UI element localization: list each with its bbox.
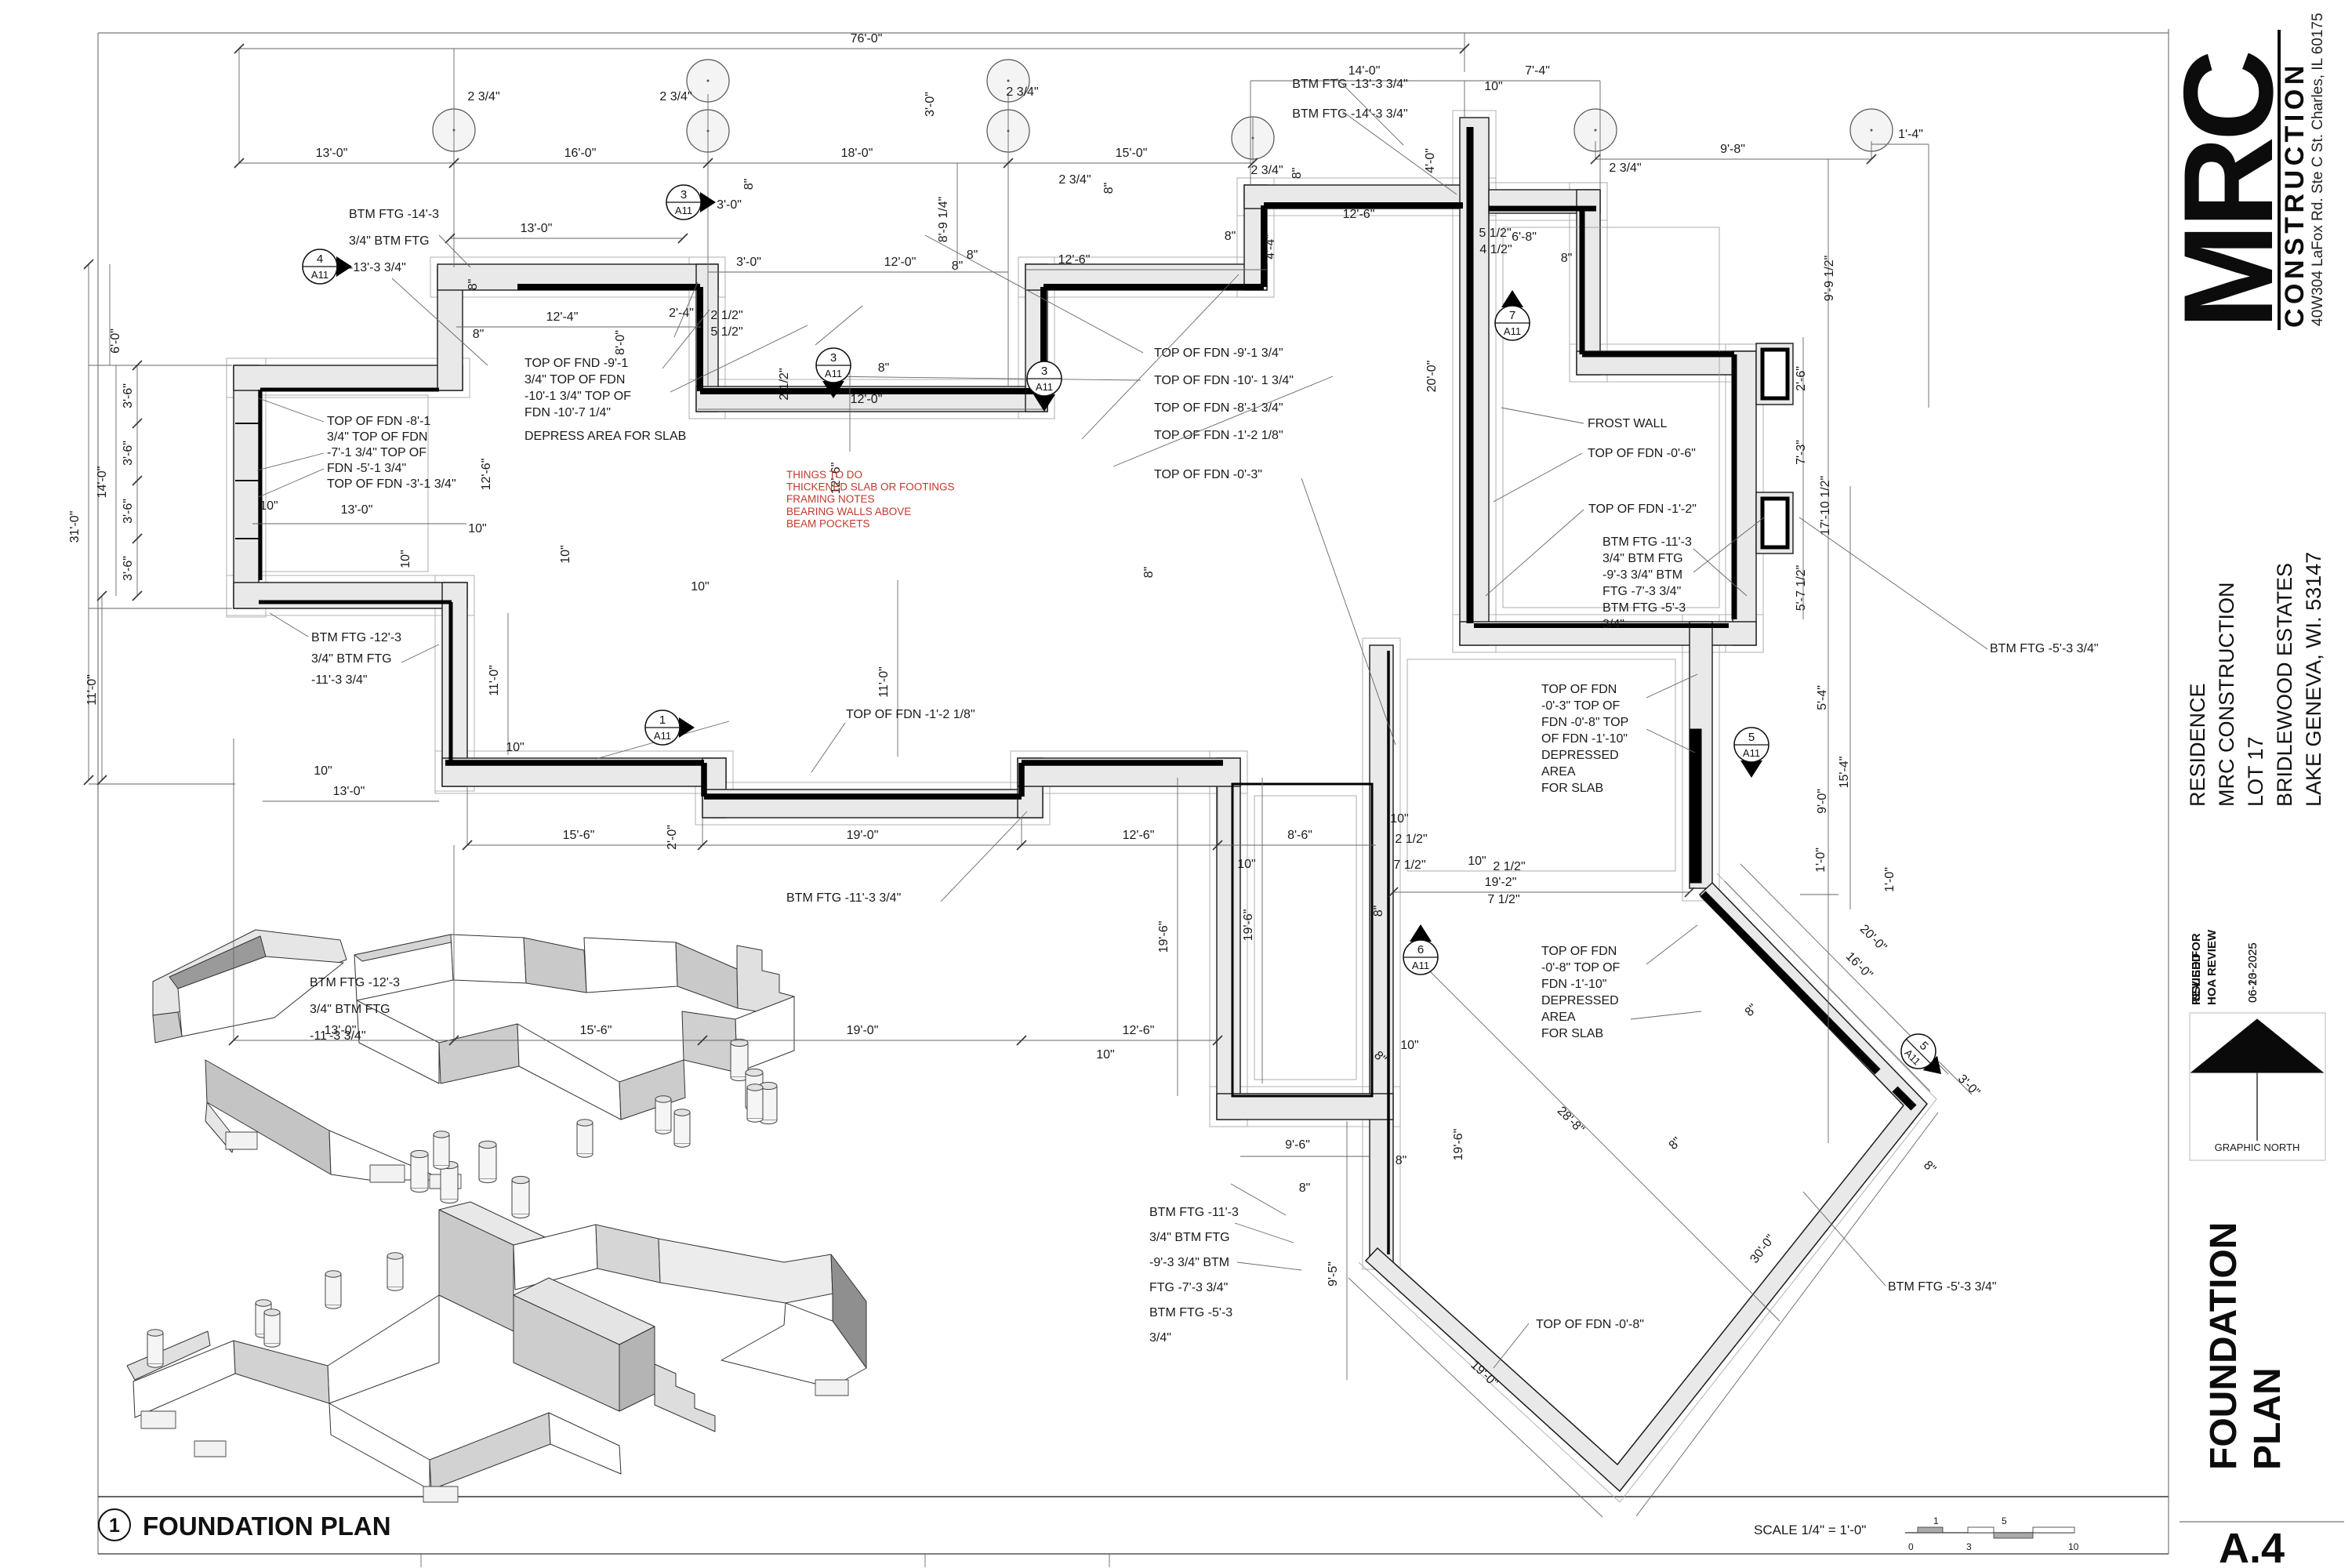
svg-text:BTM FTG -11'-3 3/4": BTM FTG -11'-3 3/4" [786,891,901,905]
svg-text:7: 7 [1509,309,1515,322]
svg-text:13'-0": 13'-0" [521,222,553,235]
svg-text:3/4": 3/4" [1602,618,1624,631]
svg-text:6'-0": 6'-0" [109,328,122,354]
svg-text:A11: A11 [1412,960,1429,971]
svg-text:19'-0": 19'-0" [847,1024,879,1037]
svg-text:0: 0 [1908,1541,1914,1552]
svg-text:10": 10" [468,522,486,535]
svg-text:19'-0": 19'-0" [847,829,879,842]
svg-text:10": 10" [1400,1039,1418,1052]
svg-text:A11: A11 [1504,325,1521,337]
svg-text:3/4" TOP OF FDN: 3/4" TOP OF FDN [524,373,625,387]
svg-text:19'-6": 19'-6" [1452,1129,1465,1161]
svg-text:12'-0": 12'-0" [884,256,916,269]
svg-text:12'-6": 12'-6" [1343,208,1375,221]
svg-text:10": 10" [314,764,332,778]
svg-text:-7'-1 3/4" TOP OF: -7'-1 3/4" TOP OF [327,446,426,459]
svg-text:19'-6": 19'-6" [1242,909,1255,942]
svg-text:3/4" BTM FTG: 3/4" BTM FTG [1602,552,1683,565]
svg-text:5 1/2": 5 1/2" [710,325,742,339]
svg-text:8'-9 1/4": 8'-9 1/4" [937,197,950,243]
svg-text:TOP OF FDN -1'-2 1/8": TOP OF FDN -1'-2 1/8" [846,708,975,721]
svg-text:14'-0": 14'-0" [96,466,109,499]
svg-text:BTM FTG -12'-3: BTM FTG -12'-3 [310,976,400,989]
svg-text:8": 8" [1372,906,1385,917]
svg-text:9'-9 1/2": 9'-9 1/2" [1823,256,1836,302]
svg-text:A11: A11 [1036,381,1053,393]
svg-text:2'-6": 2'-6" [1795,366,1808,391]
svg-text:-0'-3" TOP OF: -0'-3" TOP OF [1541,699,1621,713]
svg-text:8": 8" [1142,567,1156,579]
svg-text:5: 5 [1748,731,1755,744]
svg-text:6: 6 [1417,943,1424,956]
svg-text:10": 10" [1096,1048,1114,1062]
svg-text:7'-3": 7'-3" [1795,440,1808,465]
svg-text:8": 8" [1290,168,1304,180]
svg-text:TOP OF FDN: TOP OF FDN [1541,683,1617,696]
svg-text:3'-6": 3'-6" [122,556,135,581]
svg-text:17'-10 1/2": 17'-10 1/2" [1819,476,1832,535]
svg-text:TOP OF FDN -0'-8": TOP OF FDN -0'-8" [1536,1318,1644,1331]
svg-text:AREA: AREA [1541,1011,1576,1024]
svg-text:8": 8" [952,260,964,273]
svg-text:-0'-8" TOP OF: -0'-8" TOP OF [1541,961,1621,975]
svg-text:8": 8" [473,328,485,341]
svg-text:GRAPHIC NORTH: GRAPHIC NORTH [2215,1142,2300,1153]
svg-text:4'-0": 4'-0" [1424,148,1437,173]
svg-text:MRC CONSTRUCTION: MRC CONSTRUCTION [2215,583,2238,807]
svg-text:ISSUED FOR: ISSUED FOR [2190,933,2203,1005]
svg-text:FOR SLAB: FOR SLAB [1541,782,1603,795]
svg-text:12'-0": 12'-0" [851,393,883,406]
svg-text:3'-6": 3'-6" [122,499,135,524]
svg-text:TOP OF FDN -8'-1: TOP OF FDN -8'-1 [327,415,430,428]
svg-text:2 1/2": 2 1/2" [1493,860,1525,873]
svg-text:2'-4": 2'-4" [669,307,694,320]
svg-text:20'-0": 20'-0" [1425,361,1439,393]
svg-text:3'-6": 3'-6" [122,383,135,408]
svg-text:10: 10 [2068,1541,2079,1552]
svg-text:2 3/4": 2 3/4" [467,90,499,103]
svg-text:TOP OF FDN -8'-1 3/4": TOP OF FDN -8'-1 3/4" [1154,401,1283,415]
svg-text:4: 4 [317,252,323,266]
svg-text:RESIDENCE: RESIDENCE [2186,683,2209,807]
svg-text:6'-8": 6'-8" [1512,230,1537,244]
svg-text:OF FDN -1'-10": OF FDN -1'-10" [1541,732,1628,746]
svg-text:BEARING WALLS ABOVE: BEARING WALLS ABOVE [786,506,911,517]
svg-text:2 3/4": 2 3/4" [1609,162,1641,175]
svg-text:10": 10" [1468,855,1486,868]
svg-text:12'-6": 12'-6" [1123,829,1155,842]
svg-text:5: 5 [2002,1515,2007,1526]
svg-text:THICKENED SLAB OR FOOTINGS: THICKENED SLAB OR FOOTINGS [786,481,955,493]
svg-text:-11'-3 3/4": -11'-3 3/4" [310,1029,366,1043]
svg-text:FOR SLAB: FOR SLAB [1541,1027,1603,1040]
svg-text:3/4" BTM FTG: 3/4" BTM FTG [310,1003,390,1016]
svg-text:12'-6": 12'-6" [1058,253,1091,267]
svg-text:40W304 LaFox Rd. Ste C St. Cha: 40W304 LaFox Rd. Ste C St. Charles, IL 6… [2310,13,2326,326]
svg-text:AREA: AREA [1541,765,1576,779]
svg-text:LOT 17: LOT 17 [2244,736,2267,807]
svg-text:06-20-2025: 06-20-2025 [2246,942,2259,1003]
svg-text:10": 10" [260,499,278,513]
svg-text:TOP OF FDN -3'-1 3/4": TOP OF FDN -3'-1 3/4" [327,477,456,491]
svg-text:9'-0": 9'-0" [1816,789,1829,814]
svg-text:13'-0": 13'-0" [341,503,373,517]
svg-text:13'-0": 13'-0" [333,785,365,798]
svg-text:BEAM POCKETS: BEAM POCKETS [786,517,870,529]
svg-text:8": 8" [967,249,978,262]
svg-text:TOP OF FDN: TOP OF FDN [1541,945,1617,958]
svg-text:TOP OF FDN -9'-1 3/4": TOP OF FDN -9'-1 3/4" [1154,347,1283,360]
svg-text:3/4" BTM FTG: 3/4" BTM FTG [1149,1231,1230,1244]
svg-text:10": 10" [559,545,572,563]
svg-text:TOP OF FDN -0'-6": TOP OF FDN -0'-6" [1588,447,1696,460]
svg-text:DEPRESSED: DEPRESSED [1541,749,1619,762]
svg-text:FDN -10'-7 1/4": FDN -10'-7 1/4" [524,406,611,419]
svg-text:FROST WALL: FROST WALL [1588,417,1667,430]
svg-text:5'-4": 5'-4" [1816,685,1829,710]
svg-text:-11'-3 3/4": -11'-3 3/4" [311,673,368,687]
svg-text:FDN -1'-10": FDN -1'-10" [1541,978,1606,991]
svg-text:BTM FTG -5'-3 3/4": BTM FTG -5'-3 3/4" [1888,1280,1997,1294]
svg-text:1: 1 [659,713,666,727]
svg-text:8": 8" [878,361,890,375]
svg-text:FDN -0'-8" TOP: FDN -0'-8" TOP [1541,716,1628,729]
svg-text:7 1/2": 7 1/2" [1487,893,1519,906]
svg-text:3'-6": 3'-6" [122,441,135,466]
svg-text:1: 1 [1933,1515,1939,1526]
svg-text:11'-0": 11'-0" [85,674,99,706]
svg-text:76'-0": 76'-0" [851,32,883,45]
svg-text:10": 10" [1390,812,1408,826]
svg-text:10": 10" [506,741,524,754]
svg-text:DEPRESSED: DEPRESSED [1541,994,1619,1007]
svg-text:8": 8" [1561,252,1573,265]
svg-text:2 1/2": 2 1/2" [710,309,742,322]
svg-text:TOP OF FDN -10'- 1 3/4": TOP OF FDN -10'- 1 3/4" [1154,374,1294,387]
svg-text:CONSTRUCTION: CONSTRUCTION [2280,61,2310,328]
svg-text:8'-6": 8'-6" [1287,829,1312,842]
svg-text:A.4: A.4 [2219,1525,2285,1568]
svg-text:3'-0": 3'-0" [717,198,742,212]
svg-text:19'-6": 19'-6" [1157,921,1171,953]
svg-text:A11: A11 [654,730,671,742]
svg-text:FOUNDATION PLAN: FOUNDATION PLAN [143,1512,391,1541]
svg-text:8": 8" [1225,230,1236,243]
svg-text:A11: A11 [1743,747,1760,759]
svg-text:3'-0": 3'-0" [924,92,937,117]
svg-text:1'-0": 1'-0" [1883,867,1896,892]
svg-text:HOA REVIEW: HOA REVIEW [2205,929,2219,1005]
svg-text:3'-0": 3'-0" [736,256,761,269]
svg-text:8": 8" [1396,1154,1407,1167]
svg-text:3/4": 3/4" [1149,1331,1171,1345]
svg-text:8": 8" [1102,183,1116,194]
svg-text:15'-6": 15'-6" [563,829,595,842]
svg-text:3/4" BTM FTG: 3/4" BTM FTG [349,234,430,248]
svg-text:12'-6": 12'-6" [480,459,493,491]
svg-text:19'-2": 19'-2" [1485,876,1517,889]
svg-text:3: 3 [1041,365,1047,378]
svg-text:SCALE 1/4" = 1'-0": SCALE 1/4" = 1'-0" [1754,1523,1866,1537]
svg-text:DEPRESS AREA FOR SLAB: DEPRESS AREA FOR SLAB [524,430,686,443]
svg-text:BTM FTG -13'-3 3/4": BTM FTG -13'-3 3/4" [1292,78,1407,91]
svg-text:15'-4": 15'-4" [1838,757,1851,789]
svg-text:8'-0": 8'-0" [614,330,627,355]
svg-text:-9'-3 3/4" BTM: -9'-3 3/4" BTM [1602,568,1682,582]
svg-text:FTG -7'-3 3/4": FTG -7'-3 3/4" [1149,1281,1228,1294]
svg-text:FDN -5'-1 3/4": FDN -5'-1 3/4" [327,462,406,475]
svg-text:BRIDLEWOOD ESTATES: BRIDLEWOOD ESTATES [2273,563,2296,807]
svg-text:FTG -7'-3 3/4": FTG -7'-3 3/4" [1602,585,1681,598]
svg-text:2 3/4": 2 3/4" [1058,173,1091,187]
svg-text:2 1/2": 2 1/2" [778,368,791,400]
svg-text:16'-0": 16'-0" [564,147,597,160]
svg-text:TOP OF FDN -0'-3": TOP OF FDN -0'-3" [1154,468,1262,481]
svg-text:2'-0": 2'-0" [666,825,679,850]
svg-text:-10'-1 3/4" TOP OF: -10'-1 3/4" TOP OF [524,390,631,403]
svg-text:BTM FTG -5'-3 3/4": BTM FTG -5'-3 3/4" [1990,642,2099,655]
svg-text:10": 10" [1237,858,1255,871]
svg-text:BTM FTG -11'-3: BTM FTG -11'-3 [1602,535,1692,549]
svg-text:BTM FTG -14'-3 3/4": BTM FTG -14'-3 3/4" [1292,107,1407,121]
svg-text:13'-0": 13'-0" [316,147,348,160]
svg-text:BTM FTG -5'-3: BTM FTG -5'-3 [1149,1306,1232,1319]
svg-text:TOP OF FDN -1'-2 1/8": TOP OF FDN -1'-2 1/8" [1154,429,1283,442]
svg-text:5 1/2": 5 1/2" [1479,227,1511,240]
svg-text:10": 10" [1484,80,1502,93]
svg-text:PLAN: PLAN [2247,1367,2288,1470]
svg-text:1'-0": 1'-0" [1814,848,1828,873]
svg-text:9'-8": 9'-8" [1720,143,1745,156]
svg-text:8": 8" [1299,1181,1311,1195]
svg-text:9'-6": 9'-6" [1285,1138,1310,1152]
svg-text:BTM FTG -5'-3: BTM FTG -5'-3 [1602,601,1686,615]
svg-text:FRAMING NOTES: FRAMING NOTES [786,493,875,505]
svg-text:3: 3 [830,351,837,365]
svg-text:BTM FTG -12'-3: BTM FTG -12'-3 [311,631,401,644]
svg-text:4 1/2": 4 1/2" [1479,243,1512,256]
svg-text:THINGS TO DO: THINGS TO DO [786,469,862,481]
svg-text:7 1/2": 7 1/2" [1393,858,1425,872]
svg-text:18'-0": 18'-0" [841,147,873,160]
svg-text:TOP OF FDN -1'-2": TOP OF FDN -1'-2" [1588,503,1697,516]
svg-text:BTM FTG -14'-3: BTM FTG -14'-3 [349,208,439,221]
svg-text:7'-4": 7'-4" [1525,64,1550,78]
svg-text:FOUNDATION: FOUNDATION [2203,1222,2245,1470]
svg-text:14'-0": 14'-0" [1348,64,1381,78]
svg-text:11'-0": 11'-0" [488,665,501,696]
svg-text:-9'-3 3/4" BTM: -9'-3 3/4" BTM [1149,1256,1229,1269]
svg-text:3/4" BTM FTG: 3/4" BTM FTG [311,652,392,666]
svg-text:12'-4": 12'-4" [546,310,579,324]
svg-text:TOP OF FND -9'-1: TOP OF FND -9'-1 [524,357,628,370]
svg-text:1'-4": 1'-4" [1898,128,1923,141]
svg-text:2 3/4": 2 3/4" [659,90,691,103]
svg-text:8": 8" [466,279,480,291]
svg-text:15'-6": 15'-6" [580,1024,612,1037]
svg-text:A11: A11 [675,205,692,216]
svg-text:9'-5": 9'-5" [1327,1261,1340,1287]
svg-text:2 3/4": 2 3/4" [1250,164,1283,177]
svg-text:1: 1 [109,1515,120,1537]
svg-text:BTM FTG -11'-3: BTM FTG -11'-3 [1149,1206,1239,1219]
svg-text:A11: A11 [311,269,328,281]
svg-text:3/4" TOP OF FDN: 3/4" TOP OF FDN [327,430,427,444]
svg-text:LAKE GENEVA, WI. 53147: LAKE GENEVA, WI. 53147 [2302,552,2325,807]
svg-text:3: 3 [1966,1541,1972,1552]
svg-text:2 3/4": 2 3/4" [1006,85,1038,99]
svg-text:4'-4": 4'-4" [1264,234,1277,260]
svg-text:11'-0": 11'-0" [877,666,891,698]
svg-text:3: 3 [681,188,687,201]
svg-text:10": 10" [691,580,709,593]
svg-text:15'-0": 15'-0" [1116,147,1148,160]
svg-text:5'-7 1/2": 5'-7 1/2" [1795,565,1808,612]
svg-text:A11: A11 [825,368,842,379]
svg-text:10": 10" [399,550,412,568]
svg-text:12'-6": 12'-6" [1123,1024,1155,1037]
svg-text:31'-0": 31'-0" [68,511,82,543]
svg-text:8": 8" [742,179,756,191]
svg-text:-13'-3 3/4": -13'-3 3/4" [349,261,406,274]
svg-text:2 1/2": 2 1/2" [1395,833,1427,846]
